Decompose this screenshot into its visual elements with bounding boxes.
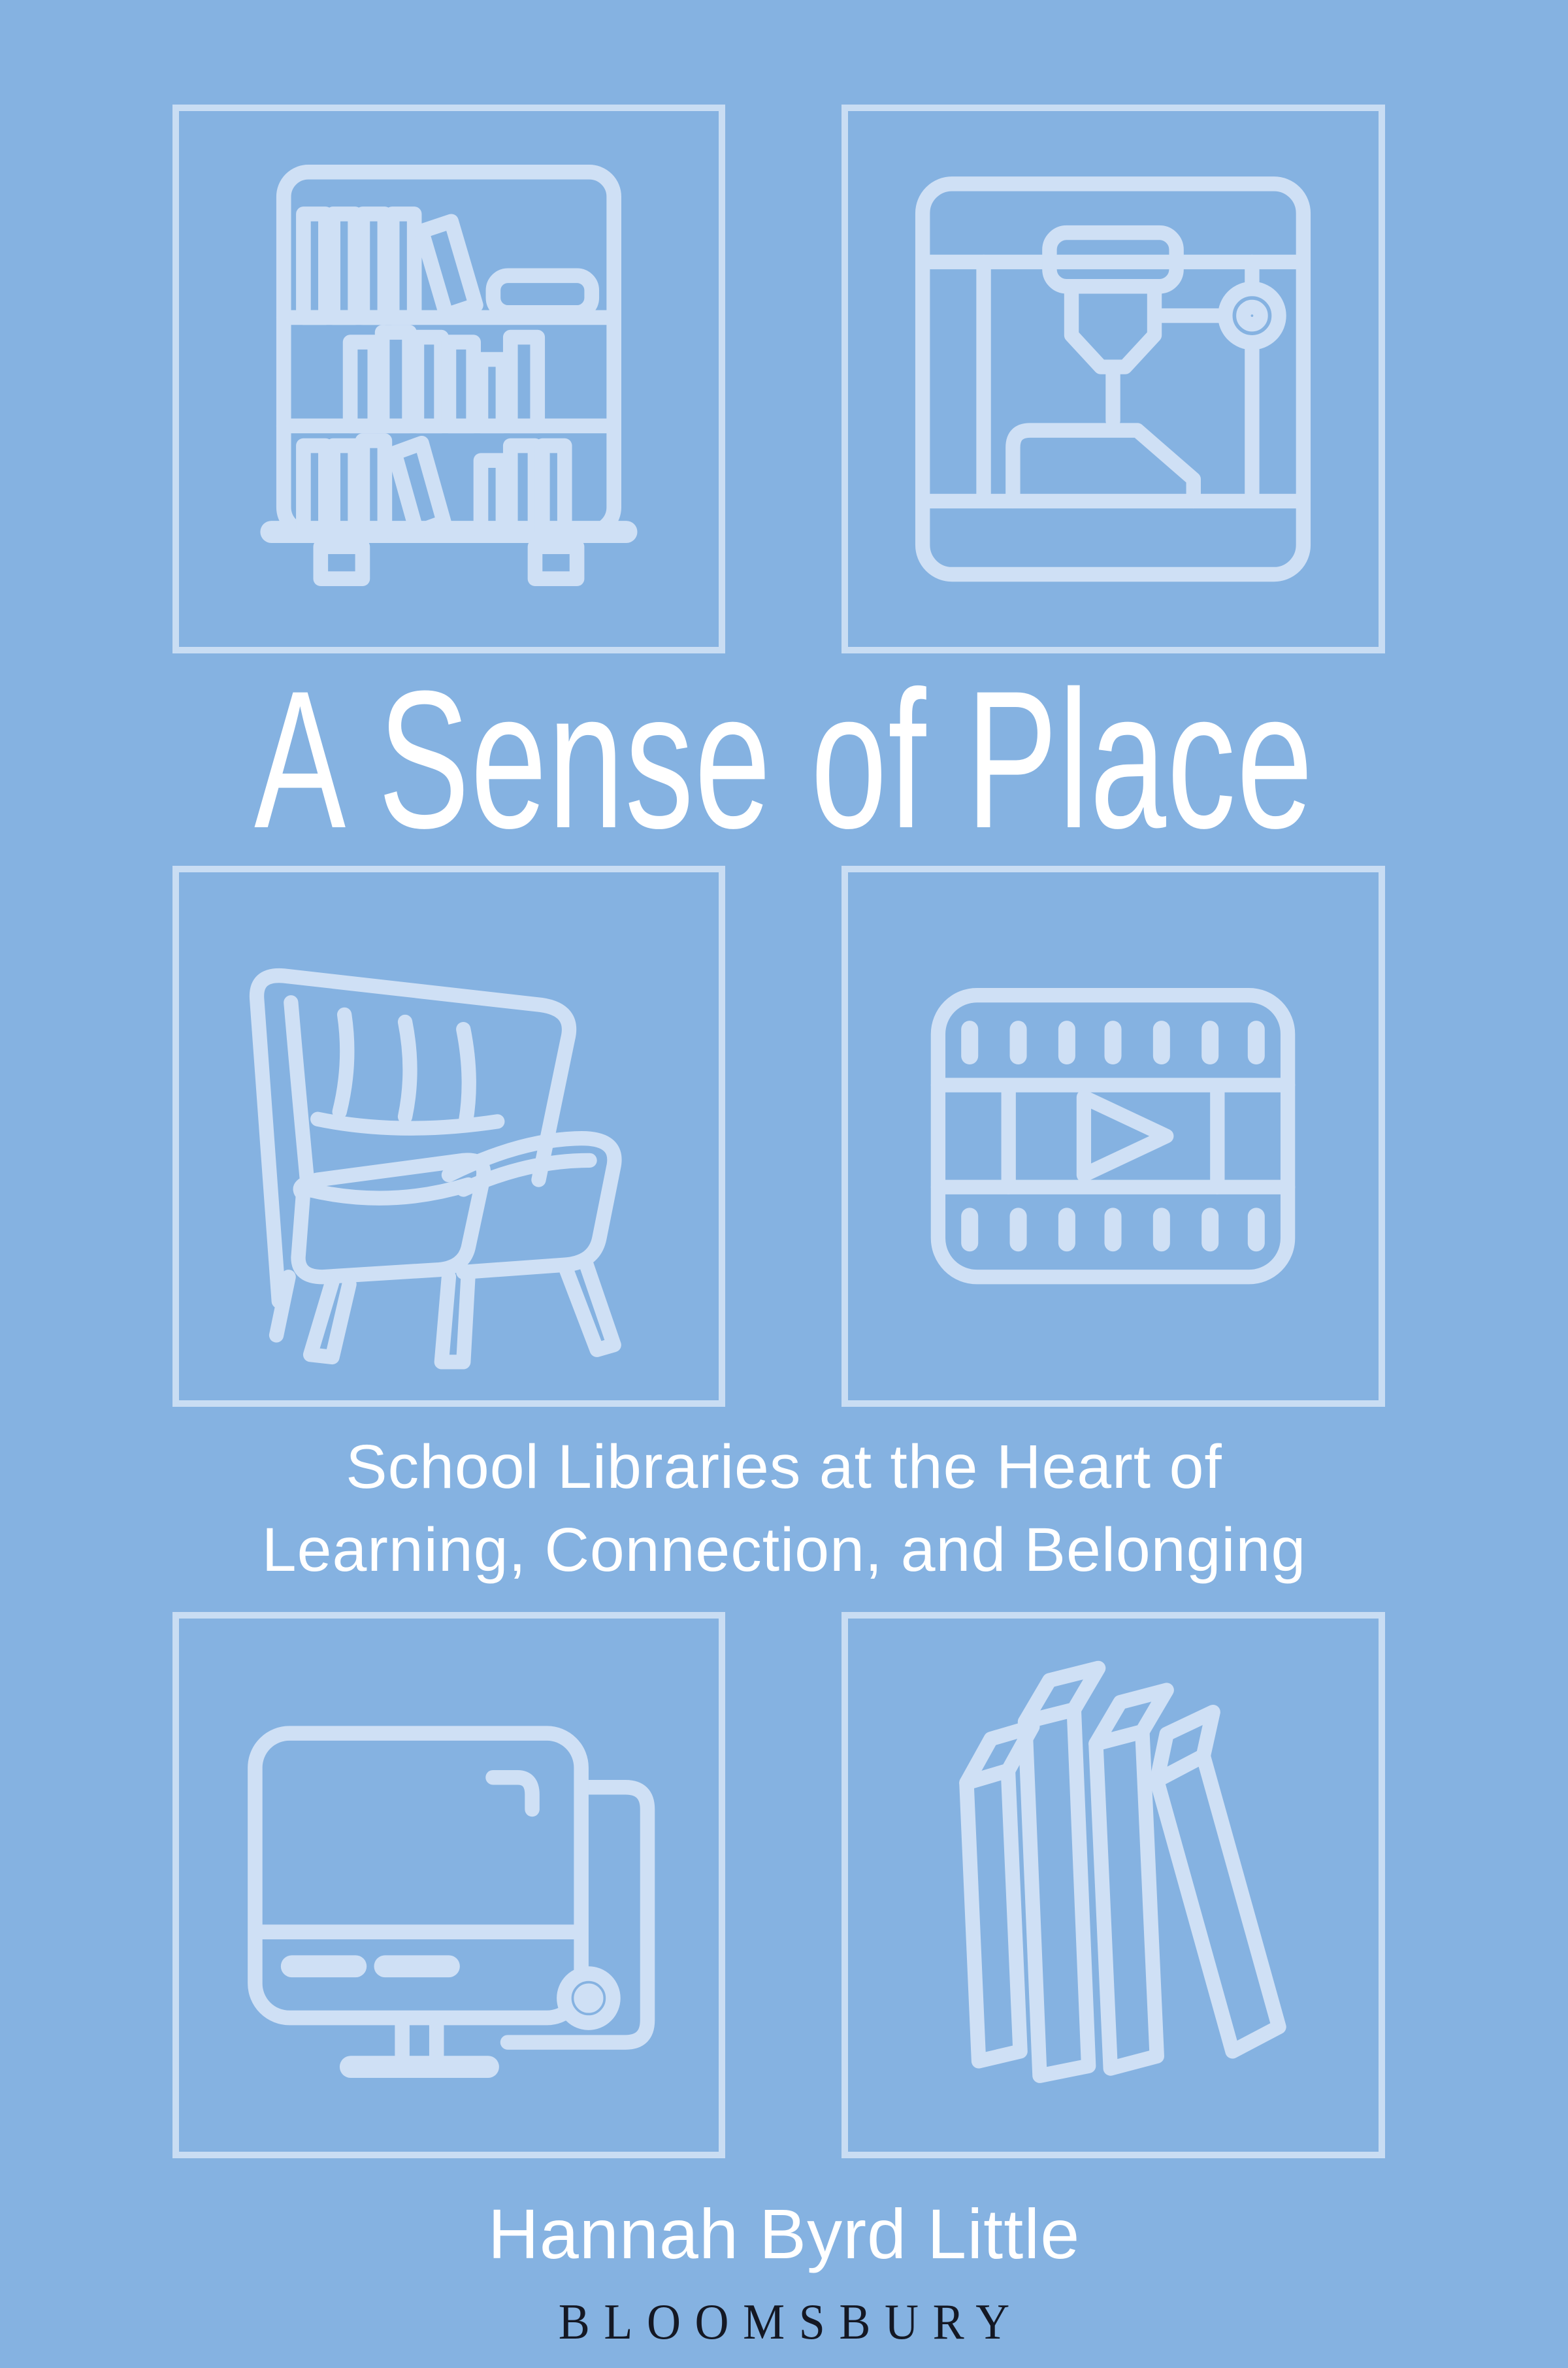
author-name: Hannah Byrd Little: [0, 2197, 1568, 2271]
book-cover: A Sense of Place: [0, 0, 1568, 2368]
film-strip-icon: [869, 893, 1357, 1379]
bookshelf-icon: [201, 133, 697, 625]
book-title: A Sense of Place: [235, 661, 1333, 857]
icon-box-computer: [172, 1612, 725, 2158]
3d-printer-icon: [869, 133, 1357, 625]
books-icon: [869, 1640, 1357, 2131]
icon-box-3d-printer: [841, 105, 1385, 653]
subtitle-line-1: School Libraries at the Heart of: [0, 1426, 1568, 1509]
book-subtitle: School Libraries at the Heart of Learnin…: [0, 1426, 1568, 1592]
desktop-computer-icon: [201, 1640, 697, 2131]
subtitle-line-2: Learning, Connection, and Belonging: [0, 1509, 1568, 1592]
icon-box-film-strip: [841, 866, 1385, 1407]
icon-box-armchair: [172, 866, 725, 1407]
icon-box-books: [841, 1612, 1385, 2158]
publisher-logo: BLOOMSBURY: [0, 2293, 1568, 2352]
icon-box-bookshelf: [172, 105, 725, 653]
armchair-icon: [201, 893, 697, 1379]
